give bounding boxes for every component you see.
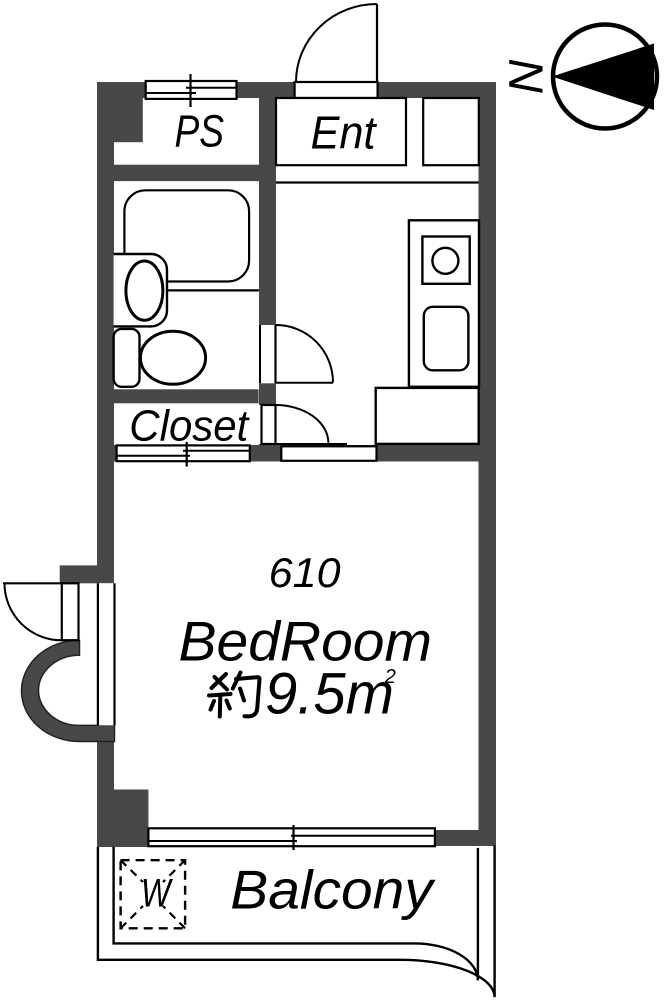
svg-text:Ent: Ent bbox=[311, 107, 378, 159]
svg-text:9.5m: 9.5m bbox=[265, 662, 394, 727]
svg-text:610: 610 bbox=[269, 549, 342, 596]
svg-text:W: W bbox=[141, 872, 173, 916]
svg-text:Balcony: Balcony bbox=[230, 858, 436, 920]
svg-text:PS: PS bbox=[175, 105, 225, 156]
svg-text:N: N bbox=[501, 59, 554, 94]
svg-text:2: 2 bbox=[384, 666, 396, 688]
svg-text:Closet: Closet bbox=[129, 402, 250, 451]
